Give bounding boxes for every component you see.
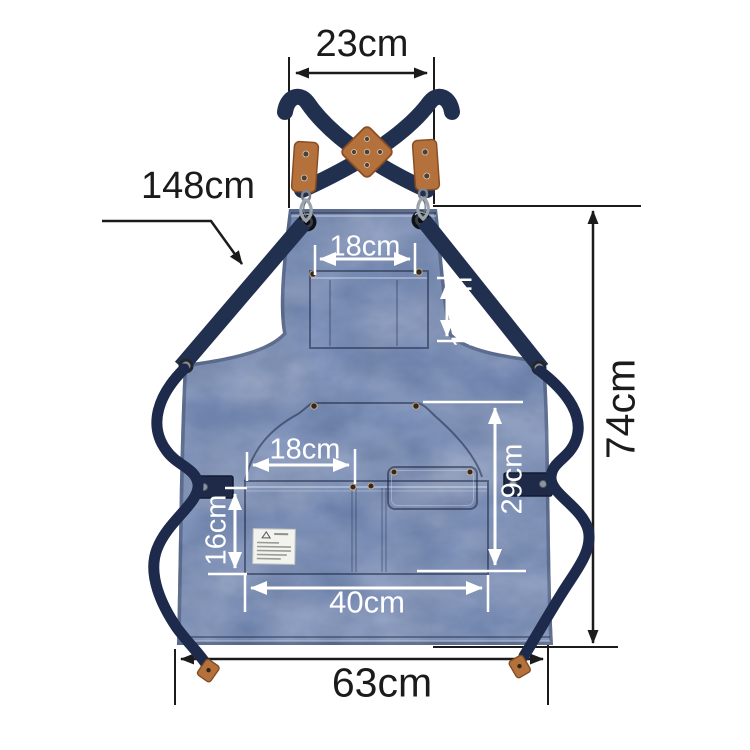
dim-label-waist-pocket-height: 16cm bbox=[203, 495, 232, 566]
dim-label-strap-length: 148cm bbox=[141, 167, 255, 205]
care-label bbox=[253, 529, 296, 565]
dim-label-top-strap-width: 23cm bbox=[316, 25, 409, 63]
dim-label-bottom-width: 63cm bbox=[332, 663, 432, 704]
dim-label-waist-pocket-width: 18cm bbox=[270, 436, 341, 465]
dim-label-body-height: 74cm bbox=[601, 359, 642, 459]
dim-strap-length-leader bbox=[102, 221, 242, 264]
dim-label-chest-pocket-width: 18cm bbox=[330, 233, 401, 262]
dim-label-lower-section-height: 29cm bbox=[499, 444, 528, 515]
dim-label-pocket-panel-width: 40cm bbox=[329, 587, 405, 618]
dim-label-chest-pocket-height: 12cm bbox=[449, 277, 478, 348]
apron-dimension-diagram: 23cm 148cm 74cm 63cm 18cm 12cm 18cm 29cm… bbox=[0, 0, 750, 750]
